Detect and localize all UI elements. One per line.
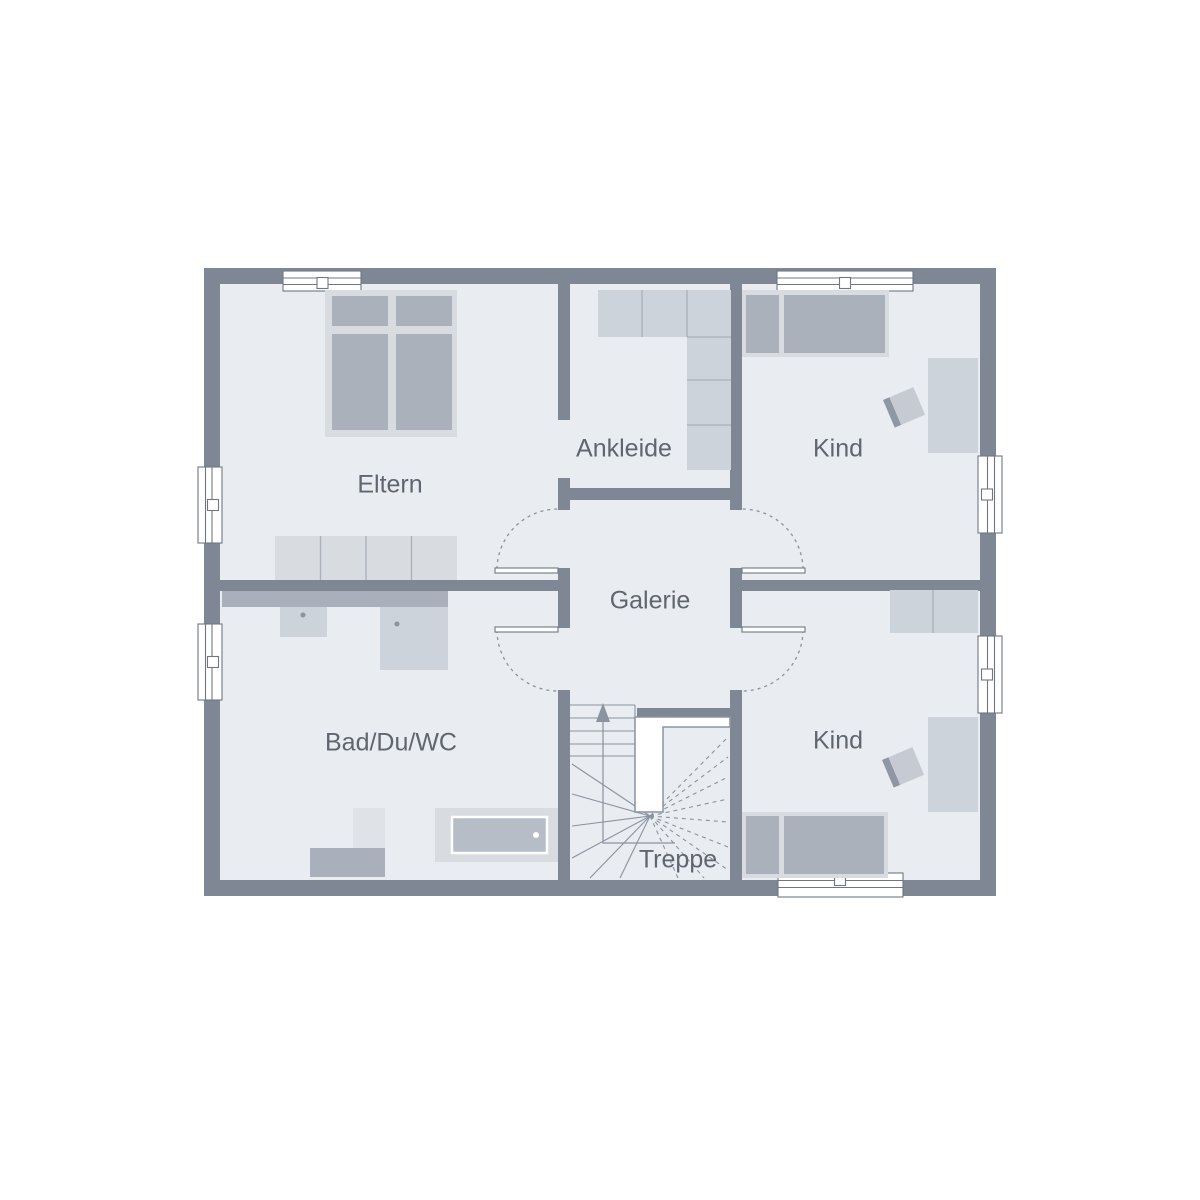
window-marker <box>840 278 851 289</box>
washbasin <box>280 607 327 637</box>
window-marker <box>982 669 993 680</box>
bed-pillow <box>746 295 779 353</box>
wardrobe-column <box>687 337 731 470</box>
single-bed <box>742 812 888 878</box>
double-bed <box>325 290 457 437</box>
wall-stub-right-mid <box>730 568 742 628</box>
wall-eltern-bad <box>220 580 558 591</box>
wall-eltern-ankleide <box>558 284 570 420</box>
desk <box>928 358 978 453</box>
room-label-bad: Bad/Du/WC <box>325 729 457 757</box>
bed-pillow <box>746 816 779 874</box>
window-marker <box>208 657 219 668</box>
wc-cistern <box>310 848 385 877</box>
wall-ankleide-kind <box>730 284 742 510</box>
wall-right <box>980 268 996 896</box>
wall-left <box>204 268 220 896</box>
wardrobe-row <box>598 290 731 337</box>
wardrobe <box>928 717 978 812</box>
room-label-kind-top: Kind <box>813 435 863 463</box>
floorplan-canvas: Eltern Ankleide Kind <box>0 0 1200 1200</box>
wall-stair-top <box>637 708 730 717</box>
bed-pillow <box>396 296 452 326</box>
wall-ankleide-galerie <box>570 488 732 500</box>
wall-stair-right <box>730 690 742 880</box>
desk-body <box>890 590 978 633</box>
window-left-eltern <box>198 467 222 543</box>
washbasin-drain <box>301 613 306 618</box>
wall-kind-kind <box>742 580 980 591</box>
room-label-eltern: Eltern <box>357 471 422 499</box>
door-leaf <box>742 627 805 632</box>
window-right-kind-top <box>978 456 1002 533</box>
wall-stub-left-upper <box>558 478 570 510</box>
door-leaf <box>495 568 558 573</box>
room-label-treppe: Treppe <box>639 846 717 874</box>
bed-mattress <box>332 334 388 430</box>
desk <box>890 590 978 633</box>
washbasin-body <box>280 607 327 637</box>
window-right-kind-bottom <box>978 636 1002 713</box>
bathtub-basin <box>452 817 547 853</box>
window-marker <box>982 489 993 500</box>
wc-seat <box>353 808 385 848</box>
bed-mattress <box>784 816 884 874</box>
bathtub-drain <box>533 832 539 838</box>
washbasin-large <box>380 607 448 670</box>
window-top-eltern <box>283 271 361 291</box>
door-leaf <box>742 568 805 573</box>
washbasin-drain <box>395 622 400 627</box>
washbasin-body <box>380 607 448 670</box>
dresser <box>275 536 457 580</box>
bed-mattress <box>784 295 885 353</box>
single-bed <box>742 290 889 357</box>
window-top-kind <box>777 271 913 291</box>
vanity-counter <box>222 591 448 607</box>
door-leaf <box>495 627 558 632</box>
window-left-bad <box>198 624 222 700</box>
bed-pillow <box>332 296 388 326</box>
floorplan-svg: Eltern Ankleide Kind <box>0 0 1200 1200</box>
bed-mattress <box>396 334 452 430</box>
wall-stub-left-mid <box>558 568 570 628</box>
window-marker <box>317 278 328 289</box>
room-label-kind-bottom: Kind <box>813 727 863 755</box>
window-marker <box>208 500 219 511</box>
bathtub <box>435 808 558 862</box>
room-label-galerie: Galerie <box>610 587 691 615</box>
room-label-ankleide: Ankleide <box>576 435 672 463</box>
wall-stair-left <box>558 690 570 880</box>
